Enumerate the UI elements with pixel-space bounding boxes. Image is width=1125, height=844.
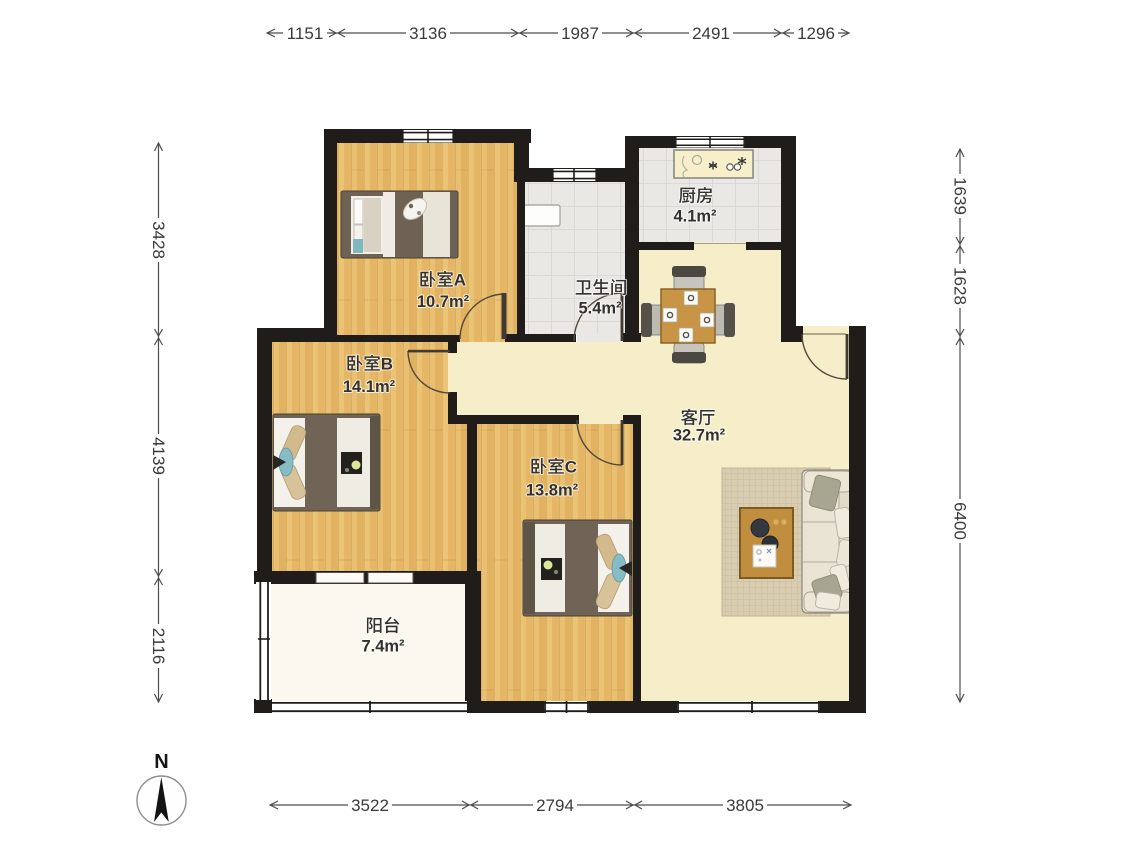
svg-text:B: B xyxy=(381,355,393,374)
svg-text:4139: 4139 xyxy=(149,437,168,475)
svg-text:4.1m²: 4.1m² xyxy=(673,208,717,226)
svg-text:7.4m²: 7.4m² xyxy=(361,638,405,656)
svg-text:3428: 3428 xyxy=(149,221,168,259)
svg-text:3522: 3522 xyxy=(351,796,389,815)
svg-text:32.7m²: 32.7m² xyxy=(673,427,726,445)
svg-text:14.1m²: 14.1m² xyxy=(343,378,396,396)
svg-text:N: N xyxy=(154,751,168,773)
svg-text:1151: 1151 xyxy=(287,24,324,43)
svg-text:13.8m²: 13.8m² xyxy=(526,482,579,500)
svg-text:2116: 2116 xyxy=(149,628,168,665)
svg-text:10.7m²: 10.7m² xyxy=(417,293,470,311)
svg-text:1296: 1296 xyxy=(797,24,835,43)
svg-text:6400: 6400 xyxy=(951,502,970,540)
svg-text:1987: 1987 xyxy=(561,24,599,43)
svg-text:A: A xyxy=(454,271,466,290)
svg-text:3136: 3136 xyxy=(409,24,447,43)
svg-text:1639: 1639 xyxy=(951,177,970,215)
svg-text:2491: 2491 xyxy=(692,24,730,43)
svg-text:1628: 1628 xyxy=(951,267,970,305)
svg-text:5.4m²: 5.4m² xyxy=(578,300,622,318)
svg-text:C: C xyxy=(565,458,577,477)
svg-text:2794: 2794 xyxy=(536,796,574,815)
svg-text:3805: 3805 xyxy=(726,796,764,815)
